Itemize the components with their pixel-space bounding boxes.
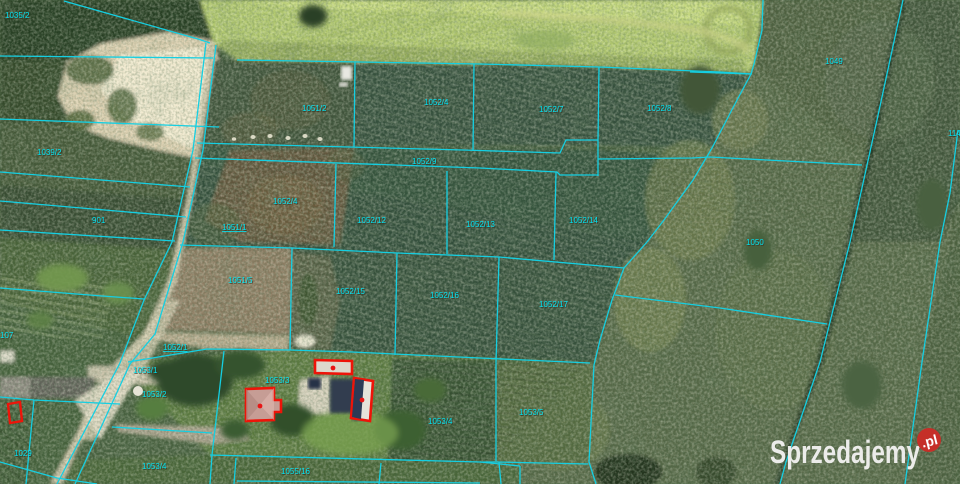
svg-text:1050: 1050 (746, 238, 764, 247)
svg-text:1052/4: 1052/4 (273, 197, 298, 206)
svg-text:1052/15: 1052/15 (336, 287, 365, 296)
svg-text:1052/12: 1052/12 (357, 216, 386, 225)
svg-text:1049: 1049 (825, 57, 843, 66)
svg-text:1029: 1029 (14, 449, 32, 458)
svg-text:1052/14: 1052/14 (569, 216, 598, 225)
svg-text:1053/5: 1053/5 (519, 408, 544, 417)
svg-text:1052/4: 1052/4 (424, 98, 449, 107)
svg-text:107: 107 (0, 331, 14, 340)
svg-text:1053/3: 1053/3 (265, 376, 290, 385)
svg-text:1053/4: 1053/4 (142, 462, 167, 471)
svg-text:1051/5: 1051/5 (228, 276, 253, 285)
svg-text:1052/17: 1052/17 (539, 300, 568, 309)
svg-text:901: 901 (92, 216, 106, 225)
svg-text:Sprzedajemy: Sprzedajemy (770, 434, 920, 470)
svg-text:1051/1: 1051/1 (222, 223, 247, 232)
svg-text:1053/2: 1053/2 (142, 390, 167, 399)
svg-text:1052/7: 1052/7 (539, 105, 564, 114)
svg-text:1052/1: 1052/1 (163, 343, 188, 352)
svg-text:1052/9: 1052/9 (412, 157, 437, 166)
svg-text:1039/2: 1039/2 (37, 148, 62, 157)
svg-text:1053/4: 1053/4 (428, 417, 453, 426)
svg-text:1052/16: 1052/16 (430, 291, 459, 300)
svg-text:1055/16: 1055/16 (281, 467, 310, 476)
svg-text:1053/1: 1053/1 (133, 366, 158, 375)
svg-text:1052/8: 1052/8 (647, 104, 672, 113)
svg-text:1051/2: 1051/2 (302, 104, 327, 113)
svg-text:1035/2: 1035/2 (5, 11, 30, 20)
svg-text:1052/13: 1052/13 (466, 220, 495, 229)
svg-text:114: 114 (948, 129, 960, 138)
